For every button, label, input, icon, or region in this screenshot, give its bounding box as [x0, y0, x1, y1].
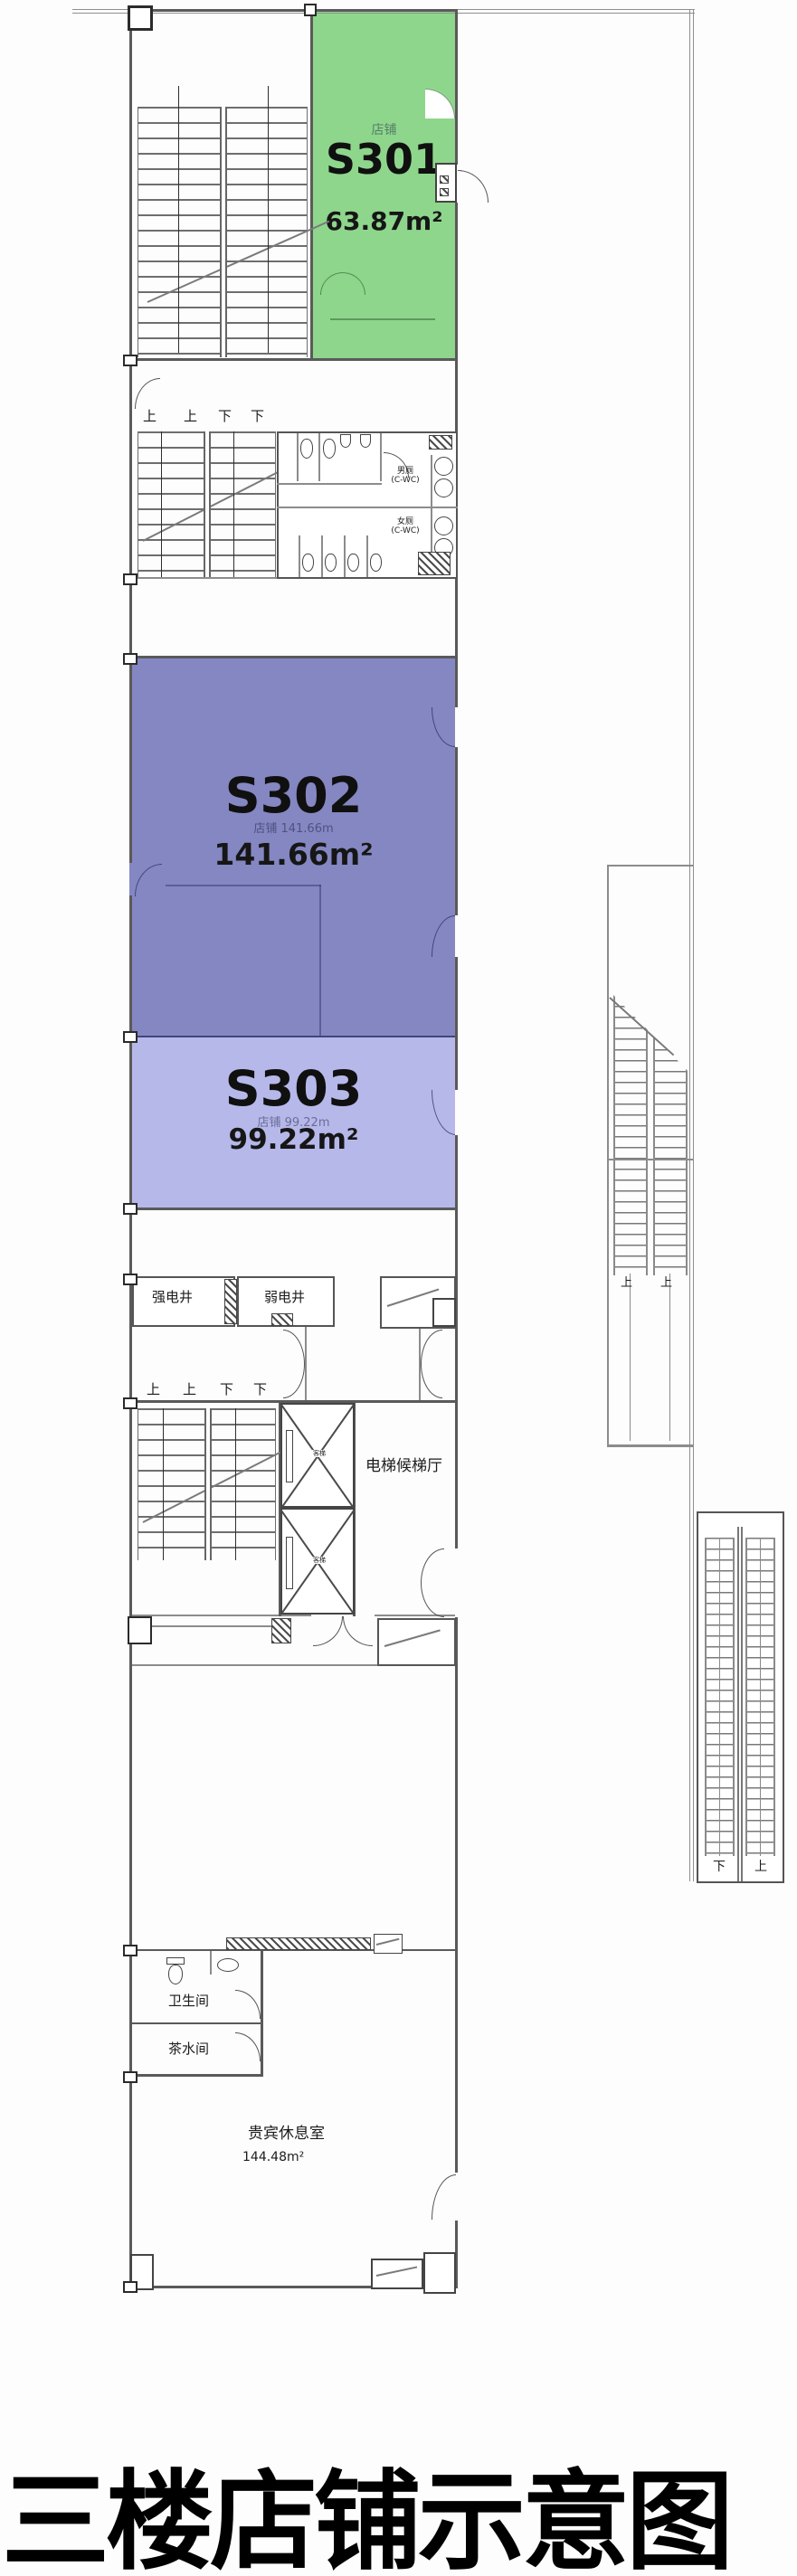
wall: [299, 535, 300, 577]
door-arc: [432, 707, 455, 747]
fixture: [374, 1934, 403, 1954]
escalator-landing-line: [607, 1159, 693, 1160]
column: [123, 2071, 138, 2083]
shaft-hatch: [271, 1313, 293, 1326]
door-arc: [235, 1990, 261, 2019]
door-gap: [455, 1090, 458, 1135]
door-arc: [283, 1330, 305, 1364]
wall: [132, 2074, 262, 2077]
door-arc: [421, 1364, 442, 1398]
stair-diagonal: [147, 221, 330, 303]
column: [123, 1945, 138, 1956]
fixture-diagonal: [376, 1938, 400, 1946]
stair-divider: [204, 431, 211, 577]
wall: [129, 9, 458, 12]
wall: [305, 1327, 307, 1400]
partition-line: [166, 885, 321, 886]
wall: [321, 535, 323, 577]
column: [304, 4, 317, 16]
stair-arrow: [161, 431, 162, 577]
stair-diagonal: [143, 1444, 297, 1523]
stair-label-up: 上: [184, 409, 197, 424]
toilet-icon: [325, 554, 337, 572]
elevator-car-label: 客梯: [306, 1557, 333, 1564]
door-arc: [421, 1548, 444, 1583]
column: [123, 1397, 138, 1409]
escalator-rail: [630, 1274, 631, 1441]
stair-arrow: [178, 86, 179, 353]
restroom-male-label: 男厕(C-WC): [380, 467, 431, 486]
wall: [261, 1951, 263, 2077]
toilet-icon: [323, 439, 336, 459]
escalator-rail: [719, 1538, 720, 1856]
door-gap: [455, 915, 458, 957]
wall: [310, 9, 313, 361]
door-gap: [455, 707, 458, 747]
escalator-label-down: 下: [713, 1860, 726, 1874]
sink-icon: [434, 516, 453, 535]
column: [123, 573, 138, 585]
wall: [210, 1951, 212, 1975]
door-arc: [283, 1364, 305, 1398]
escalator-label-up: 上: [660, 1277, 672, 1291]
stair-divider: [220, 107, 227, 357]
column: [123, 1031, 138, 1043]
restroom-female-label: 女厕(C-WC): [380, 517, 431, 536]
toilet-tank: [166, 1957, 185, 1965]
escalator-run: [653, 995, 688, 1275]
unit-s302: S302 店铺 141.66m 141.66m²: [132, 658, 455, 1036]
door-arc: [458, 170, 489, 203]
wall: [277, 483, 382, 485]
stair-label-down: 下: [251, 409, 264, 424]
wall: [132, 1207, 455, 1210]
shaft-hatch: [429, 435, 452, 450]
toilet-icon: [168, 1965, 183, 1984]
stair-arrow: [163, 1408, 164, 1560]
door-arc: [421, 1330, 442, 1364]
stair-diagonal: [143, 462, 297, 542]
stair-arrow: [235, 1408, 236, 1560]
floor-plan: 店铺 S301 63.87m² S302 店铺 141.66m 141.66m²…: [0, 0, 797, 2576]
wall: [344, 535, 346, 577]
toilet-icon: [347, 554, 359, 572]
door-arc: [343, 1616, 373, 1646]
wall: [132, 1615, 311, 1616]
column: [123, 653, 138, 665]
unit-s303: S303 店铺 99.22m 99.22m²: [132, 1037, 455, 1207]
escalator-well-wall: [607, 1444, 693, 1447]
wall: [318, 433, 320, 481]
stair-label-down: 下: [220, 1382, 233, 1397]
unit-s302-id: S302: [132, 772, 455, 820]
site-boundary-right: [689, 9, 694, 1881]
urinal-icon: [340, 434, 351, 448]
toilet-icon: [300, 439, 313, 459]
shaft-hatch: [418, 552, 451, 575]
escalator-center-divider: [737, 1527, 743, 1881]
wall: [132, 1625, 274, 1627]
column: [123, 1274, 138, 1285]
door-arc: [313, 1616, 343, 1646]
fixture-diagonal: [376, 2266, 417, 2277]
column: [128, 5, 153, 31]
toilet-icon: [370, 554, 382, 572]
door-arc: [235, 2032, 261, 2061]
unit-s303-id: S303: [132, 1065, 455, 1113]
escalator-runs: [613, 995, 688, 1275]
elevator-shaft: 客梯: [280, 1403, 355, 1508]
strong-electric-shaft-label: 强电井: [152, 1290, 193, 1305]
door-arc: [421, 1583, 444, 1617]
sink-icon: [434, 478, 453, 497]
unit-s303-area: 99.22m²: [132, 1126, 455, 1154]
fixture-diagonal: [384, 1629, 441, 1647]
weak-electric-shaft-label: 弱电井: [264, 1290, 305, 1305]
fixture: [371, 2259, 423, 2289]
unit-s301: 店铺 S301 63.87m²: [313, 12, 455, 358]
escalator-run: [613, 995, 648, 1275]
door-arc: [320, 272, 343, 295]
elevator-hall-label: 电梯候梯厅: [365, 1458, 442, 1476]
page-title: 三楼店铺示意图: [2, 2469, 795, 2576]
escalator-rail: [669, 1274, 670, 1441]
vip-area-label: 144.48m²: [242, 2150, 304, 2164]
elevator-shaft: 客梯: [280, 1508, 355, 1615]
sink-icon: [217, 1958, 239, 1972]
elevator-car-label: 客梯: [306, 1450, 333, 1457]
door-gap: [455, 1548, 458, 1617]
wall: [455, 9, 458, 2288]
stair-label-up: 上: [183, 1382, 196, 1397]
wall: [366, 535, 368, 577]
partition-line: [330, 318, 435, 320]
fixture: [432, 1298, 456, 1327]
column-hatch: [271, 1618, 291, 1643]
door-arc: [343, 272, 365, 295]
vip-room-label: 贵宾休息室: [248, 2126, 325, 2144]
fixture: [423, 2252, 456, 2294]
column: [123, 1203, 138, 1215]
stair-label-down: 下: [218, 409, 232, 424]
service-room: [377, 1618, 456, 1666]
wall: [132, 1036, 455, 1037]
door-arc: [432, 2174, 456, 2220]
tea-room-label: 茶水间: [168, 2041, 209, 2057]
escalator-label-up: 上: [754, 1860, 767, 1874]
elevator-door: [286, 1430, 293, 1482]
wall: [132, 358, 455, 361]
stair-label-down: 下: [253, 1382, 267, 1397]
column: [123, 355, 138, 366]
toilet-icon: [302, 554, 314, 572]
escalator-rail: [760, 1538, 761, 1856]
unit-s302-underlay: 店铺 141.66m: [132, 823, 455, 835]
wall-hatch: [226, 1937, 371, 1950]
wall: [132, 656, 455, 658]
escalator-label-up: 上: [621, 1277, 632, 1291]
door-arc: [432, 915, 455, 957]
escalator-well-wall: [607, 865, 609, 1447]
door-arc: [135, 378, 160, 409]
stair-label-up: 上: [143, 409, 157, 424]
stair-arrow: [268, 86, 269, 353]
wall: [431, 455, 432, 563]
urinal-icon: [360, 434, 371, 448]
column: [128, 1616, 152, 1644]
unit-s302-area: 141.66m²: [132, 839, 455, 869]
sink-icon: [434, 457, 453, 476]
unit-s301-area: 63.87m²: [313, 209, 455, 234]
escalator-well-wall: [607, 865, 693, 867]
stair-label-up: 上: [147, 1382, 160, 1397]
wall: [132, 2022, 262, 2024]
elevator-door: [286, 1537, 293, 1589]
door-fixture-detail: [440, 175, 449, 184]
door-fixture-detail: [440, 188, 449, 196]
stair-divider: [204, 1408, 212, 1560]
stair-arrow: [233, 431, 234, 577]
unit-s301-id: S301: [313, 138, 455, 180]
fixture-diagonal: [387, 1289, 440, 1307]
partition-line: [319, 885, 321, 1036]
column: [123, 2281, 138, 2293]
door-arc: [425, 89, 455, 118]
toilet-room-label: 卫生间: [168, 1994, 209, 2009]
door-gap: [129, 863, 132, 895]
wall: [297, 433, 299, 481]
shaft-hatch: [224, 1279, 237, 1324]
